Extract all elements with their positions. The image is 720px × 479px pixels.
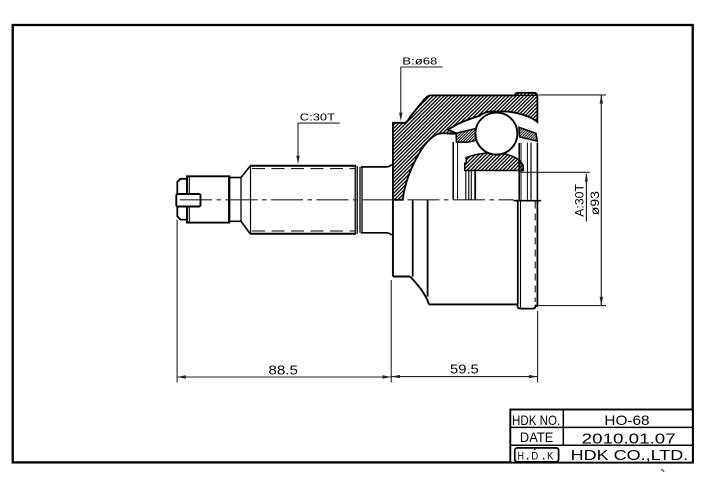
svg-text:HDK CO.,LTD.: HDK CO.,LTD. bbox=[571, 448, 689, 464]
svg-text:K: K bbox=[547, 450, 554, 462]
svg-text:59.5: 59.5 bbox=[450, 363, 479, 377]
svg-text:88.5: 88.5 bbox=[268, 364, 298, 378]
svg-text:2010.01.07: 2010.01.07 bbox=[582, 431, 676, 447]
svg-text:H: H bbox=[517, 450, 524, 462]
svg-text:DATE: DATE bbox=[520, 429, 553, 445]
svg-text:B:ø68: B:ø68 bbox=[402, 55, 437, 67]
svg-text:HO-68: HO-68 bbox=[604, 412, 649, 428]
svg-text:ø93: ø93 bbox=[590, 191, 602, 215]
svg-text:D: D bbox=[531, 450, 538, 462]
svg-text:HDK NO.: HDK NO. bbox=[512, 412, 560, 428]
svg-text:A:30T: A:30T bbox=[574, 184, 586, 217]
svg-text:C:30T: C:30T bbox=[300, 111, 336, 123]
